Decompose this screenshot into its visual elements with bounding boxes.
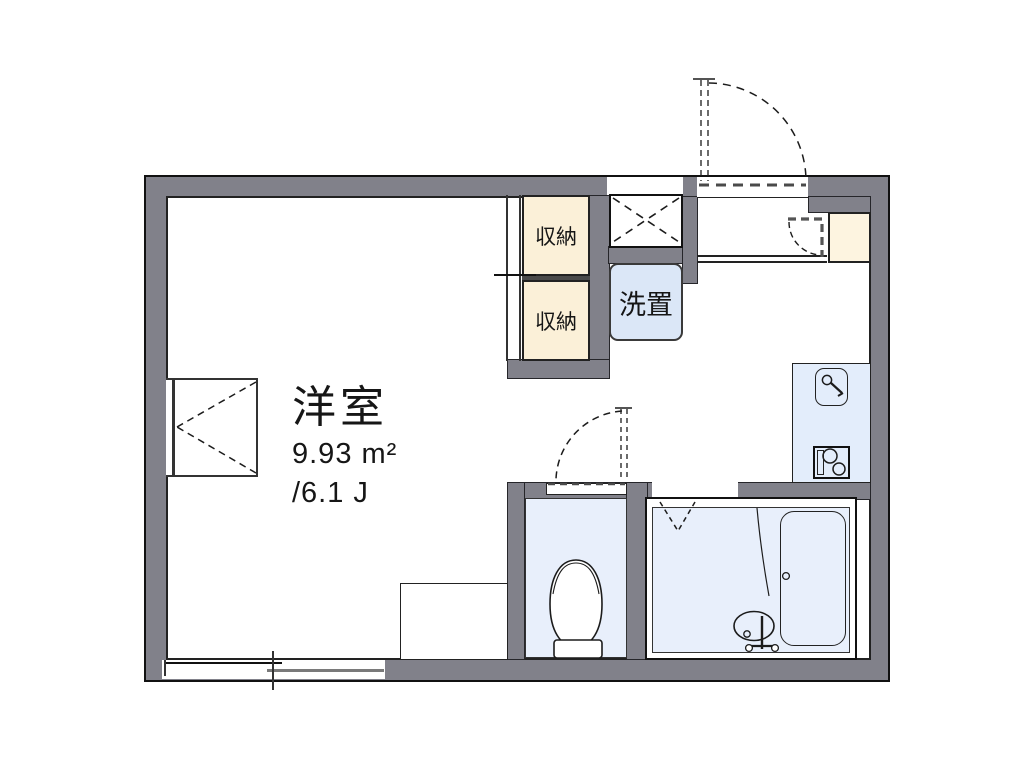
bathtub [780, 511, 846, 646]
floor-plan-page: { "plan": { "type": "apartment-floor-pla… [0, 0, 1016, 772]
closet-upper-label: 収納 [535, 221, 577, 251]
main-room-title: 洋室 9.93 m² /6.1 J [292, 385, 452, 508]
toilet-door-sill [546, 483, 627, 495]
window-track-lower [267, 669, 384, 672]
kitchen-counter [792, 363, 871, 483]
closet-lower-label: 収納 [535, 306, 577, 336]
closet-sliding-door-line2 [519, 195, 521, 361]
counter-space [400, 583, 508, 660]
casement-window-west [166, 378, 258, 477]
gas-stove [813, 446, 850, 479]
main-room-name: 洋室 [292, 385, 452, 431]
main-room-area-sqm: 9.93 m² [292, 439, 452, 469]
washer-space-label: 洗置 [619, 283, 673, 322]
closet-door-tick [494, 274, 536, 276]
kitchen-sink [815, 368, 848, 406]
wall-under-meter-box [608, 246, 683, 264]
step-edge-lower [697, 261, 827, 263]
wall-toilet-left [507, 482, 525, 660]
entrance-opening [697, 177, 808, 197]
window-jamb-left [164, 660, 166, 676]
closet-sliding-door-line1 [506, 195, 508, 361]
entrance-door-swing-icon [693, 79, 806, 185]
step-edge-upper [697, 255, 827, 257]
closet-lower: 収納 [522, 280, 590, 361]
wall-closet-right [589, 195, 610, 379]
wall-entry-corner [808, 196, 871, 213]
wall-entry-stub [682, 196, 698, 284]
window-track-upper [166, 662, 282, 664]
washer-space: 洗置 [609, 263, 683, 341]
window-frame-line [172, 380, 175, 475]
toilet-room [525, 498, 627, 658]
wall-closet-bottom [507, 359, 610, 379]
meter-box [609, 194, 683, 248]
main-room-area-tatami: /6.1 J [292, 478, 452, 508]
closet-upper: 収納 [522, 195, 590, 276]
window-center-tick [272, 651, 274, 690]
shoe-cabinet [828, 212, 871, 263]
stove-grill-bar [817, 450, 824, 475]
meter-box-outside-opening [607, 177, 683, 195]
